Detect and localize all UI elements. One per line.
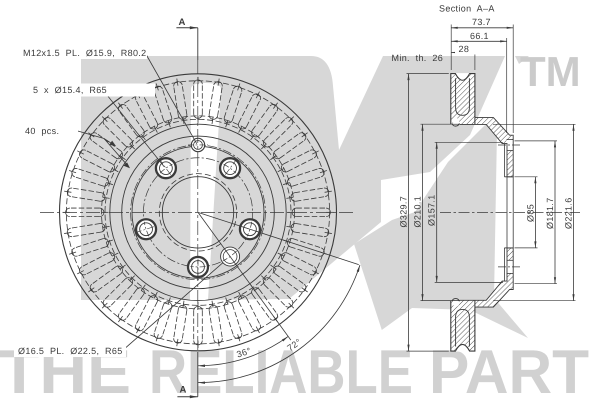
svg-text:66.1: 66.1 bbox=[470, 31, 489, 41]
svg-text:TM: TM bbox=[520, 48, 581, 95]
svg-text:Min. th. 26: Min. th. 26 bbox=[392, 53, 444, 63]
svg-text:Ø329.7: Ø329.7 bbox=[399, 196, 409, 228]
svg-text:Ø221.6: Ø221.6 bbox=[564, 197, 574, 229]
svg-text:M12x1.5 PL. Ø15.9, R80.2: M12x1.5 PL. Ø15.9, R80.2 bbox=[23, 48, 147, 58]
svg-text:5 x Ø15.4, R65: 5 x Ø15.4, R65 bbox=[33, 85, 107, 95]
svg-text:Ø157.1: Ø157.1 bbox=[427, 194, 437, 226]
svg-text:Section A–A: Section A–A bbox=[439, 4, 495, 14]
svg-text:28: 28 bbox=[459, 44, 470, 54]
svg-text:40 pcs.: 40 pcs. bbox=[25, 126, 59, 136]
svg-text:Ø181.7: Ø181.7 bbox=[545, 197, 555, 229]
svg-text:73.7: 73.7 bbox=[472, 17, 491, 27]
svg-text:Ø210.1: Ø210.1 bbox=[413, 196, 423, 228]
svg-text:Ø16.5 PL. Ø22.5, R65: Ø16.5 PL. Ø22.5, R65 bbox=[18, 346, 123, 356]
svg-text:RELIABLE: RELIABLE bbox=[149, 338, 413, 400]
svg-text:A: A bbox=[179, 17, 186, 28]
svg-text:A: A bbox=[180, 385, 187, 396]
svg-text:Ø85: Ø85 bbox=[525, 204, 535, 222]
